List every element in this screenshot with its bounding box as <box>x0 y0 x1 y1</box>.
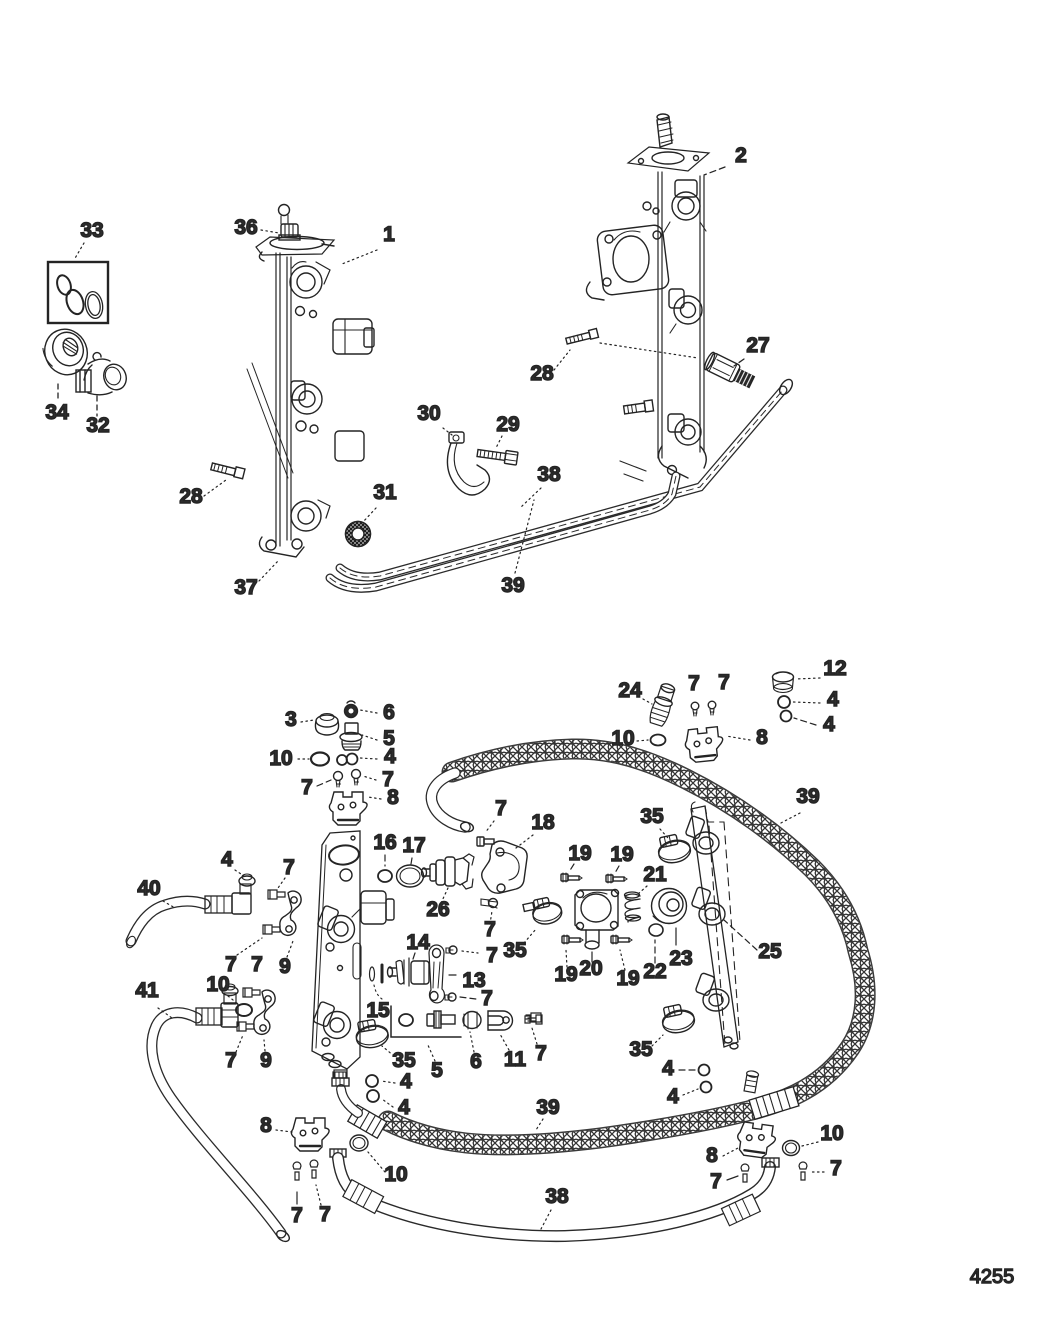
svg-text:4: 4 <box>400 1070 412 1093</box>
svg-text:14: 14 <box>406 931 430 954</box>
svg-text:6: 6 <box>470 1050 482 1073</box>
svg-text:36: 36 <box>234 216 257 239</box>
svg-text:10: 10 <box>820 1122 843 1145</box>
svg-text:7: 7 <box>484 918 496 941</box>
svg-text:37: 37 <box>234 576 257 599</box>
svg-text:33: 33 <box>80 219 103 242</box>
svg-text:7: 7 <box>688 672 700 695</box>
svg-text:7: 7 <box>481 987 493 1010</box>
svg-text:23: 23 <box>669 947 692 970</box>
svg-text:29: 29 <box>496 413 519 436</box>
svg-text:40: 40 <box>137 877 160 900</box>
svg-text:8: 8 <box>260 1114 272 1137</box>
svg-text:4: 4 <box>662 1057 674 1080</box>
svg-text:17: 17 <box>402 834 425 857</box>
svg-text:39: 39 <box>501 574 524 597</box>
svg-text:8: 8 <box>756 726 768 749</box>
svg-text:4255: 4255 <box>970 1266 1015 1288</box>
svg-text:24: 24 <box>618 679 642 702</box>
svg-text:7: 7 <box>319 1203 331 1226</box>
svg-text:4: 4 <box>667 1085 679 1108</box>
svg-text:11: 11 <box>504 1048 527 1071</box>
svg-text:6: 6 <box>383 701 395 724</box>
svg-text:25: 25 <box>758 940 782 963</box>
svg-text:35: 35 <box>503 939 527 962</box>
svg-text:41: 41 <box>135 979 159 1002</box>
svg-text:27: 27 <box>746 334 769 357</box>
svg-text:19: 19 <box>568 842 591 865</box>
svg-text:20: 20 <box>579 957 602 980</box>
svg-text:8: 8 <box>387 786 399 809</box>
svg-text:35: 35 <box>629 1038 653 1061</box>
svg-text:7: 7 <box>830 1157 842 1180</box>
svg-text:7: 7 <box>718 671 730 694</box>
svg-text:28: 28 <box>179 485 203 508</box>
svg-text:7: 7 <box>301 776 313 799</box>
svg-text:34: 34 <box>45 401 69 424</box>
svg-text:38: 38 <box>545 1185 569 1208</box>
svg-text:7: 7 <box>495 797 507 820</box>
svg-text:26: 26 <box>426 898 449 921</box>
svg-text:38: 38 <box>537 463 561 486</box>
svg-text:4: 4 <box>398 1096 410 1119</box>
svg-text:5: 5 <box>431 1059 443 1082</box>
svg-text:16: 16 <box>373 831 396 854</box>
svg-text:10: 10 <box>384 1163 407 1186</box>
svg-text:4: 4 <box>827 688 839 711</box>
svg-text:18: 18 <box>531 811 555 834</box>
svg-text:7: 7 <box>535 1042 547 1065</box>
svg-text:7: 7 <box>291 1204 303 1227</box>
svg-text:32: 32 <box>86 414 109 437</box>
svg-text:39: 39 <box>536 1096 559 1119</box>
svg-text:4: 4 <box>221 848 233 871</box>
svg-text:7: 7 <box>225 1049 237 1072</box>
svg-text:1: 1 <box>383 223 395 246</box>
svg-text:35: 35 <box>392 1049 416 1072</box>
svg-text:15: 15 <box>366 999 390 1022</box>
svg-text:21: 21 <box>643 863 667 886</box>
svg-text:4: 4 <box>384 745 396 768</box>
svg-text:19: 19 <box>554 963 577 986</box>
svg-text:19: 19 <box>610 843 633 866</box>
svg-text:4: 4 <box>823 713 835 736</box>
svg-text:28: 28 <box>530 362 554 385</box>
svg-text:9: 9 <box>260 1049 272 1072</box>
svg-text:30: 30 <box>417 402 440 425</box>
svg-text:3: 3 <box>285 708 297 731</box>
svg-text:39: 39 <box>796 785 819 808</box>
svg-text:35: 35 <box>640 805 664 828</box>
svg-text:9: 9 <box>279 955 291 978</box>
svg-text:12: 12 <box>823 657 846 680</box>
svg-text:7: 7 <box>710 1170 722 1193</box>
svg-text:19: 19 <box>616 967 639 990</box>
svg-text:8: 8 <box>706 1144 718 1167</box>
svg-text:7: 7 <box>283 856 295 879</box>
svg-text:10: 10 <box>206 973 229 996</box>
svg-text:10: 10 <box>611 727 634 750</box>
svg-text:31: 31 <box>373 481 397 504</box>
svg-text:2: 2 <box>735 144 747 167</box>
svg-text:10: 10 <box>269 747 292 770</box>
svg-text:7: 7 <box>486 944 498 967</box>
